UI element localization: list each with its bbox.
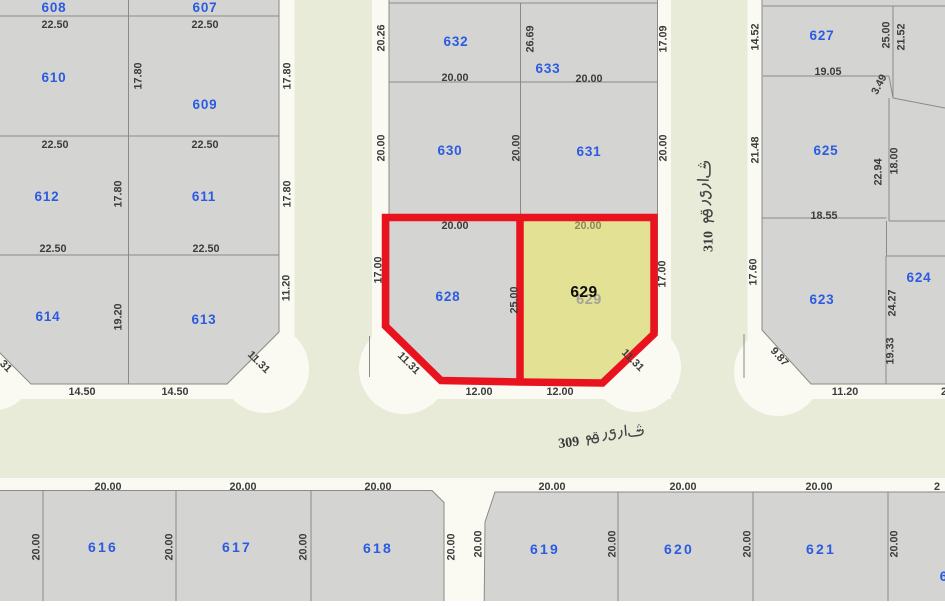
svg-text:607: 607	[193, 0, 218, 15]
svg-text:20.00: 20.00	[742, 530, 754, 557]
svg-text:17.80: 17.80	[282, 180, 294, 207]
svg-text:610: 610	[42, 70, 67, 85]
svg-text:25.00: 25.00	[509, 286, 521, 313]
svg-text:19.33: 19.33	[885, 337, 897, 364]
svg-text:614: 614	[36, 309, 61, 324]
svg-text:310: 310	[702, 231, 717, 252]
svg-text:20.00: 20.00	[298, 533, 310, 560]
svg-text:20.00: 20.00	[574, 220, 601, 232]
svg-text:22.94: 22.94	[873, 158, 885, 185]
svg-text:618: 618	[363, 540, 393, 556]
svg-text:613: 613	[192, 312, 217, 327]
svg-text:12.00: 12.00	[546, 386, 573, 398]
svg-text:22.50: 22.50	[39, 243, 66, 255]
svg-text:611: 611	[192, 189, 216, 204]
svg-text:627: 627	[810, 28, 835, 43]
svg-text:630: 630	[438, 143, 463, 158]
svg-text:25.00: 25.00	[881, 21, 893, 48]
svg-text:608: 608	[42, 0, 67, 15]
svg-text:20.26: 20.26	[376, 24, 388, 51]
svg-text:628: 628	[436, 289, 461, 304]
svg-text:20.00: 20.00	[511, 134, 523, 161]
svg-text:11.20: 11.20	[281, 275, 293, 301]
svg-text:20.00: 20.00	[805, 481, 832, 493]
svg-text:631: 631	[577, 144, 602, 159]
svg-text:19.20: 19.20	[113, 303, 125, 330]
svg-text:20.00: 20.00	[94, 481, 121, 493]
svg-text:20.00: 20.00	[364, 481, 391, 493]
svg-text:20.00: 20.00	[376, 134, 388, 161]
svg-text:11.20: 11.20	[832, 386, 858, 398]
svg-text:20.00: 20.00	[889, 530, 901, 557]
svg-text:14.50: 14.50	[68, 386, 95, 398]
svg-text:621: 621	[806, 541, 836, 557]
svg-text:20.00: 20.00	[607, 530, 619, 557]
svg-text:2: 2	[934, 481, 940, 493]
svg-text:2: 2	[941, 386, 945, 398]
svg-text:17.80: 17.80	[282, 62, 294, 89]
svg-text:20.00: 20.00	[229, 481, 256, 493]
svg-text:20.00: 20.00	[441, 220, 468, 232]
svg-text:21.52: 21.52	[896, 23, 908, 50]
svg-text:21.48: 21.48	[750, 136, 762, 163]
svg-text:625: 625	[814, 143, 839, 158]
svg-text:14.50: 14.50	[161, 386, 188, 398]
svg-text:17.80: 17.80	[133, 62, 145, 89]
svg-text:22.50: 22.50	[191, 139, 218, 151]
svg-text:62: 62	[940, 569, 945, 584]
svg-text:26.69: 26.69	[525, 25, 537, 52]
svg-text:609: 609	[193, 97, 218, 112]
svg-text:20.00: 20.00	[473, 530, 485, 557]
svg-text:624: 624	[907, 270, 932, 285]
svg-text:22.50: 22.50	[41, 139, 68, 151]
svg-text:17.00: 17.00	[373, 256, 385, 283]
svg-text:623: 623	[810, 292, 835, 307]
svg-text:629: 629	[570, 284, 597, 301]
svg-text:18.55: 18.55	[810, 210, 837, 222]
svg-text:17.09: 17.09	[658, 25, 670, 52]
svg-text:14.52: 14.52	[750, 23, 762, 50]
svg-text:20.00: 20.00	[658, 134, 670, 161]
svg-text:612: 612	[35, 189, 60, 204]
svg-text:632: 632	[444, 34, 469, 49]
svg-text:12.00: 12.00	[465, 386, 492, 398]
svg-text:17.60: 17.60	[748, 258, 760, 285]
svg-text:20.00: 20.00	[538, 481, 565, 493]
svg-text:20.00: 20.00	[441, 72, 468, 84]
svg-text:20.00: 20.00	[164, 533, 176, 560]
svg-text:17.80: 17.80	[113, 180, 125, 207]
svg-text:17.00: 17.00	[657, 260, 669, 287]
svg-text:619: 619	[530, 541, 560, 557]
svg-text:617: 617	[222, 539, 252, 555]
svg-text:20.00: 20.00	[446, 533, 458, 560]
svg-text:22.50: 22.50	[191, 19, 218, 31]
svg-text:24.27: 24.27	[887, 289, 899, 316]
svg-text:620: 620	[664, 541, 694, 557]
svg-text:19.05: 19.05	[814, 66, 841, 78]
svg-text:20.00: 20.00	[669, 481, 696, 493]
svg-text:20.00: 20.00	[575, 73, 602, 85]
svg-text:18.00: 18.00	[889, 147, 901, 174]
svg-text:20.00: 20.00	[31, 533, 43, 560]
svg-text:22.50: 22.50	[192, 243, 219, 255]
svg-text:633: 633	[536, 61, 561, 76]
svg-text:309: 309	[558, 434, 581, 451]
svg-text:22.50: 22.50	[41, 19, 68, 31]
svg-text:616: 616	[88, 539, 118, 555]
